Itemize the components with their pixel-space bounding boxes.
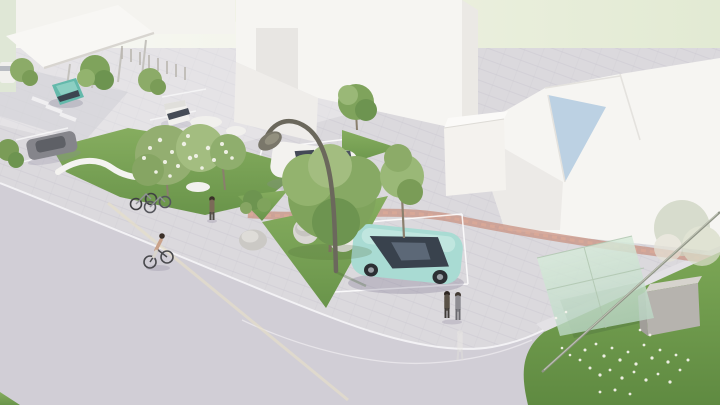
white-blob: [186, 182, 210, 192]
cube-front: [444, 119, 506, 196]
wheel-hub: [368, 267, 374, 273]
teal-car: [348, 222, 464, 294]
render-canvas: [0, 0, 720, 405]
annex-cube: [444, 111, 508, 196]
wheel-hub: [437, 274, 443, 280]
boulder-plaza-highlight: [242, 231, 259, 243]
white-building-side: [462, 0, 478, 130]
